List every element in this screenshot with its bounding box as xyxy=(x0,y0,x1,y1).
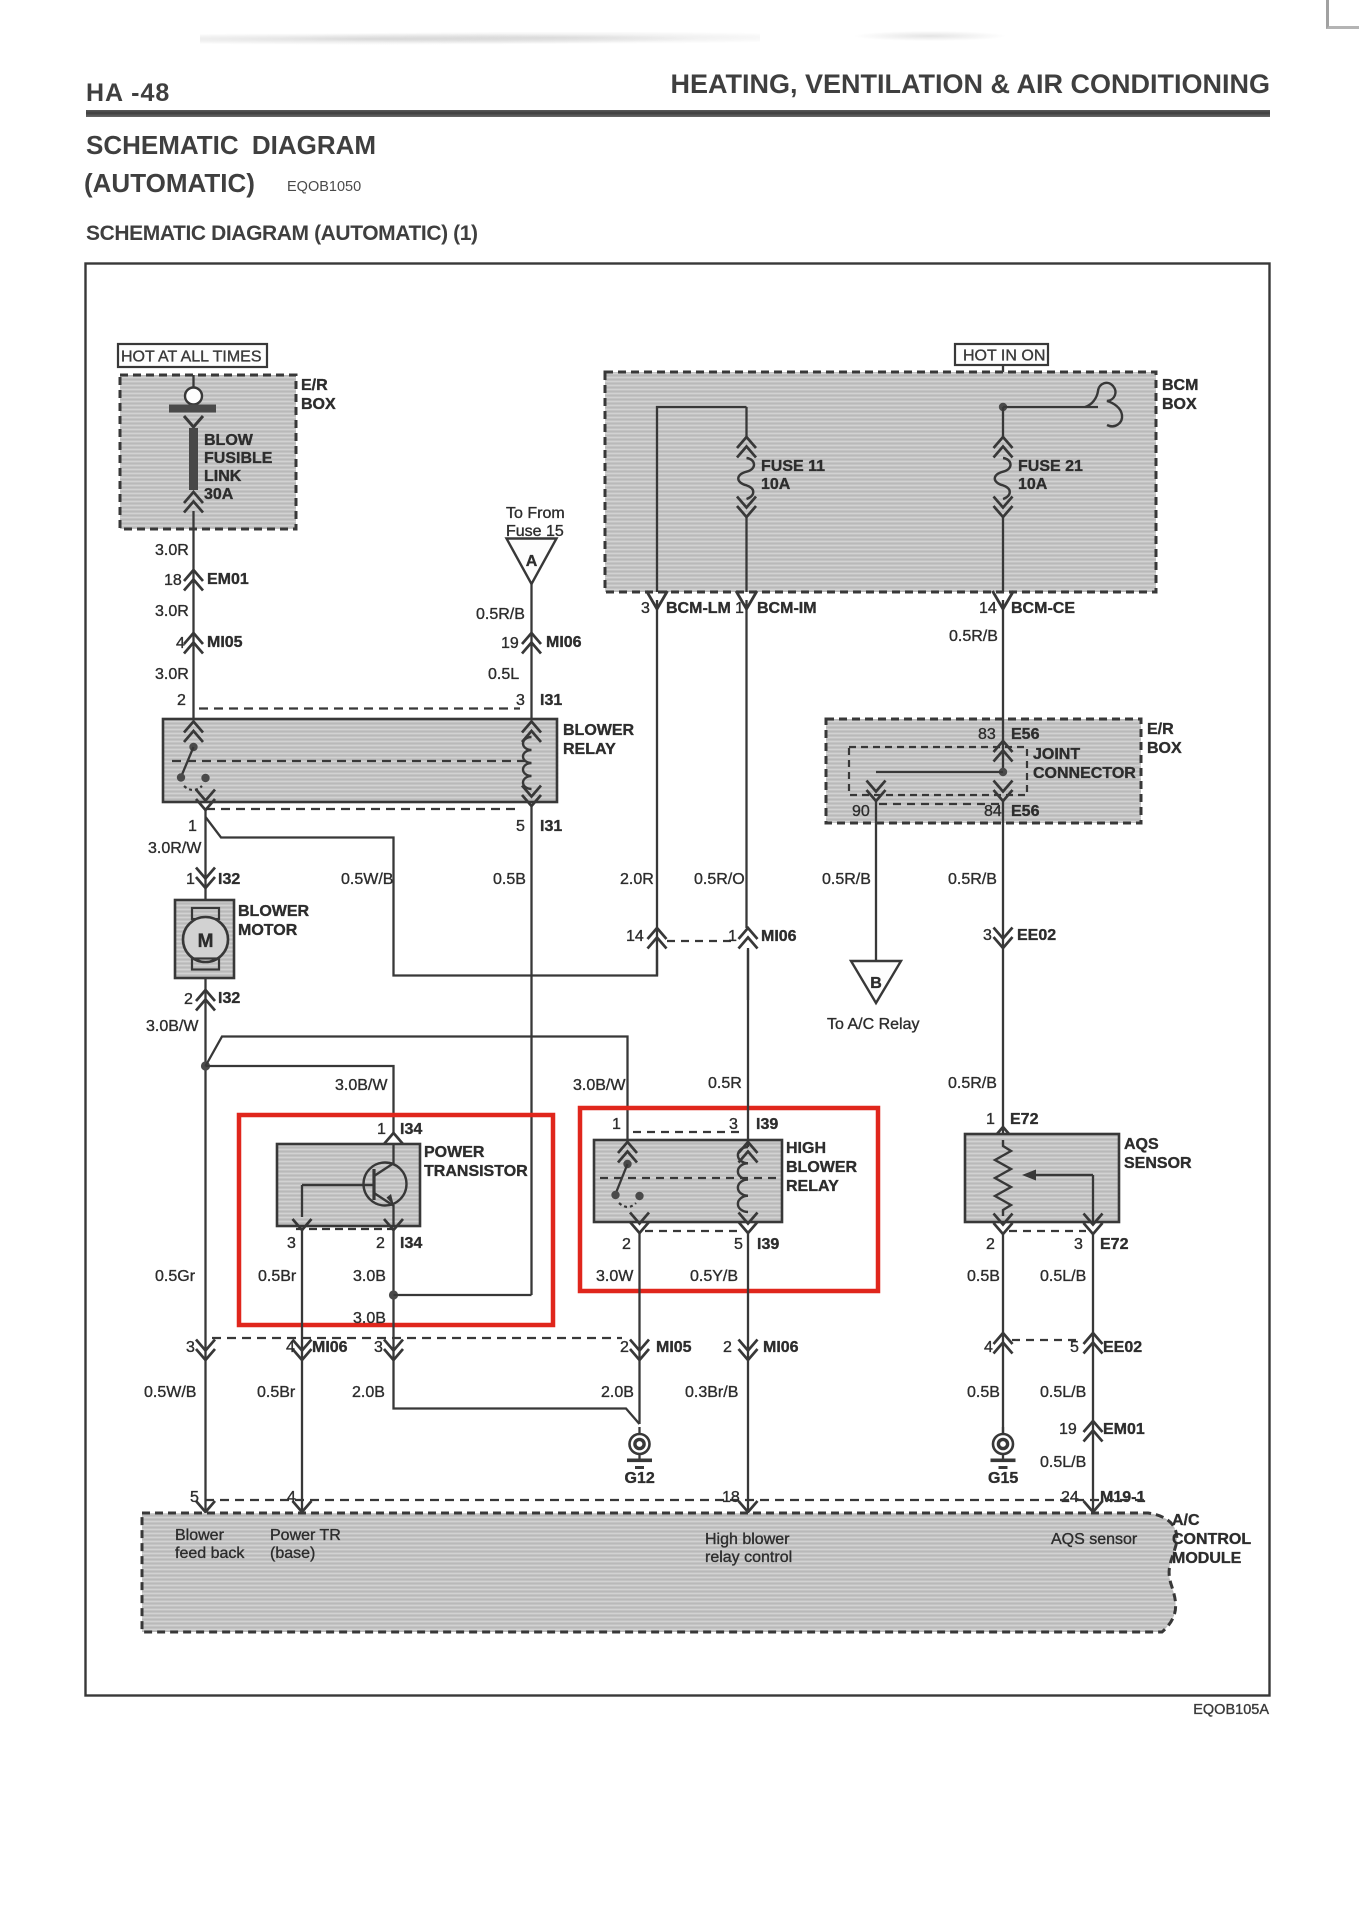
svg-text:4: 4 xyxy=(176,635,185,652)
svg-text:2.0B: 2.0B xyxy=(601,1384,634,1401)
svg-text:2: 2 xyxy=(622,1236,631,1253)
svg-text:5: 5 xyxy=(516,818,525,835)
svg-text:3.0B/W: 3.0B/W xyxy=(335,1077,388,1094)
svg-text:HIGH: HIGH xyxy=(786,1140,826,1157)
svg-text:3: 3 xyxy=(729,1116,738,1133)
svg-text:1: 1 xyxy=(188,818,197,835)
svg-text:10A: 10A xyxy=(761,476,791,493)
svg-text:14: 14 xyxy=(979,600,997,617)
svg-text:3.0R: 3.0R xyxy=(155,603,189,620)
svg-text:2: 2 xyxy=(376,1235,385,1252)
svg-text:BCM: BCM xyxy=(1162,377,1198,394)
svg-text:0.5R/B: 0.5R/B xyxy=(476,606,525,623)
svg-text:EM01: EM01 xyxy=(207,571,249,588)
svg-text:0.5Br: 0.5Br xyxy=(258,1268,297,1285)
svg-text:E72: E72 xyxy=(1100,1236,1129,1253)
svg-text:FUSIBLE: FUSIBLE xyxy=(204,450,273,467)
svg-text:MI06: MI06 xyxy=(546,634,582,651)
svg-text:I39: I39 xyxy=(756,1116,778,1133)
svg-text:MI06: MI06 xyxy=(763,1339,799,1356)
svg-text:Blower: Blower xyxy=(175,1527,225,1544)
svg-text:B: B xyxy=(870,975,882,992)
svg-text:EQOB105A: EQOB105A xyxy=(1193,1702,1269,1718)
svg-text:MI05: MI05 xyxy=(656,1339,692,1356)
svg-text:BLOWER: BLOWER xyxy=(786,1159,858,1176)
svg-text:0.5R/B: 0.5R/B xyxy=(822,871,871,888)
svg-text:1: 1 xyxy=(377,1121,386,1138)
svg-text:0.5W/B: 0.5W/B xyxy=(144,1384,196,1401)
svg-text:0.5Br: 0.5Br xyxy=(257,1384,296,1401)
svg-text:MOTOR: MOTOR xyxy=(238,922,298,939)
svg-text:BLOWER: BLOWER xyxy=(563,722,635,739)
svg-text:E56: E56 xyxy=(1011,803,1040,820)
svg-text:0.5R/B: 0.5R/B xyxy=(948,871,997,888)
svg-text:1: 1 xyxy=(986,1111,995,1128)
svg-text:M: M xyxy=(198,931,214,952)
svg-text:0.5B: 0.5B xyxy=(493,871,526,888)
svg-text:19: 19 xyxy=(501,635,519,652)
svg-text:BLOW: BLOW xyxy=(204,432,254,449)
svg-text:I39: I39 xyxy=(757,1236,779,1253)
svg-text:0.5R/B: 0.5R/B xyxy=(949,628,998,645)
svg-text:3.0R: 3.0R xyxy=(155,666,189,683)
svg-text:0.5L/B: 0.5L/B xyxy=(1040,1268,1086,1285)
svg-text:5: 5 xyxy=(1070,1339,1079,1356)
svg-text:RELAY: RELAY xyxy=(563,741,616,758)
svg-text:POWER: POWER xyxy=(424,1144,485,1161)
svg-text:2: 2 xyxy=(723,1339,732,1356)
svg-text:MODULE: MODULE xyxy=(1172,1550,1242,1567)
svg-text:3: 3 xyxy=(1074,1236,1083,1253)
svg-text:High blower: High blower xyxy=(705,1531,790,1548)
svg-text:Power TR: Power TR xyxy=(270,1527,341,1544)
svg-text:2: 2 xyxy=(986,1236,995,1253)
svg-text:0.5B: 0.5B xyxy=(967,1384,1000,1401)
svg-text:I34: I34 xyxy=(400,1121,422,1138)
svg-text:3: 3 xyxy=(516,692,525,709)
svg-text:2: 2 xyxy=(184,991,193,1008)
svg-text:4: 4 xyxy=(286,1339,295,1356)
svg-text:2: 2 xyxy=(177,692,186,709)
svg-text:3.0B/W: 3.0B/W xyxy=(573,1077,626,1094)
svg-text:AQS sensor: AQS sensor xyxy=(1051,1531,1138,1548)
svg-text:I34: I34 xyxy=(400,1235,422,1252)
svg-text:0.5Y/B: 0.5Y/B xyxy=(690,1268,738,1285)
svg-text:BCM-LM: BCM-LM xyxy=(666,600,731,617)
svg-text:TRANSISTOR: TRANSISTOR xyxy=(424,1163,528,1180)
svg-text:5: 5 xyxy=(190,1489,199,1506)
svg-text:A: A xyxy=(526,553,538,570)
svg-text:0.5R: 0.5R xyxy=(708,1075,742,1092)
svg-text:relay control: relay control xyxy=(705,1549,792,1566)
svg-text:24: 24 xyxy=(1061,1489,1079,1506)
svg-text:0.5L/B: 0.5L/B xyxy=(1040,1384,1086,1401)
svg-text:3: 3 xyxy=(983,927,992,944)
svg-text:0.5W/B: 0.5W/B xyxy=(341,871,393,888)
svg-text:AQS: AQS xyxy=(1124,1136,1159,1153)
svg-text:5: 5 xyxy=(734,1236,743,1253)
svg-text:feed back: feed back xyxy=(175,1545,245,1562)
svg-text:4: 4 xyxy=(287,1489,296,1506)
svg-text:0.5Gr: 0.5Gr xyxy=(155,1268,196,1285)
svg-text:MI06: MI06 xyxy=(312,1339,348,1356)
svg-text:To From: To From xyxy=(506,505,565,522)
svg-text:To A/C Relay: To A/C Relay xyxy=(827,1016,919,1033)
svg-text:E56: E56 xyxy=(1011,726,1040,743)
svg-text:FUSE 21: FUSE 21 xyxy=(1018,458,1083,475)
svg-text:19: 19 xyxy=(1059,1421,1077,1438)
svg-text:2: 2 xyxy=(620,1339,629,1356)
svg-text:0.3Br/B: 0.3Br/B xyxy=(685,1384,738,1401)
svg-text:84: 84 xyxy=(984,803,1002,820)
svg-text:BOX: BOX xyxy=(301,396,336,413)
svg-text:3: 3 xyxy=(287,1235,296,1252)
svg-text:I32: I32 xyxy=(218,871,240,888)
svg-text:83: 83 xyxy=(978,726,996,743)
svg-text:LINK: LINK xyxy=(204,468,242,485)
svg-text:BCM-CE: BCM-CE xyxy=(1011,600,1075,617)
svg-text:M19-1: M19-1 xyxy=(1100,1489,1145,1506)
svg-text:0.5B: 0.5B xyxy=(967,1268,1000,1285)
svg-text:1: 1 xyxy=(186,871,195,888)
svg-text:(base): (base) xyxy=(270,1545,315,1562)
svg-text:HOT IN ON: HOT IN ON xyxy=(963,348,1045,365)
svg-text:14: 14 xyxy=(626,928,644,945)
svg-text:JOINT: JOINT xyxy=(1033,746,1080,763)
svg-text:0.5R/B: 0.5R/B xyxy=(948,1075,997,1092)
svg-text:2.0R: 2.0R xyxy=(620,871,654,888)
svg-text:3: 3 xyxy=(186,1339,195,1356)
svg-text:BLOWER: BLOWER xyxy=(238,903,310,920)
svg-text:3.0R/W: 3.0R/W xyxy=(148,840,202,857)
svg-text:EM01: EM01 xyxy=(1103,1421,1145,1438)
svg-text:3.0W: 3.0W xyxy=(596,1268,634,1285)
svg-text:3.0B/W: 3.0B/W xyxy=(146,1018,199,1035)
svg-text:0.5L: 0.5L xyxy=(488,666,519,683)
svg-text:3: 3 xyxy=(641,600,650,617)
svg-text:RELAY: RELAY xyxy=(786,1178,839,1195)
svg-text:SENSOR: SENSOR xyxy=(1124,1155,1192,1172)
svg-text:EE02: EE02 xyxy=(1103,1339,1142,1356)
svg-text:MI06: MI06 xyxy=(761,928,797,945)
svg-text:0.5L/B: 0.5L/B xyxy=(1040,1454,1086,1471)
svg-text:3.0B: 3.0B xyxy=(353,1268,386,1285)
svg-text:G15: G15 xyxy=(988,1470,1018,1487)
svg-text:A/C: A/C xyxy=(1172,1512,1200,1529)
svg-text:0.5R/O: 0.5R/O xyxy=(694,871,745,888)
svg-text:3: 3 xyxy=(374,1339,383,1356)
svg-text:E72: E72 xyxy=(1010,1111,1039,1128)
svg-text:MI05: MI05 xyxy=(207,634,243,651)
svg-text:E/R: E/R xyxy=(301,377,328,394)
svg-text:3.0R: 3.0R xyxy=(155,542,189,559)
svg-text:EE02: EE02 xyxy=(1017,927,1056,944)
svg-text:G12: G12 xyxy=(625,1470,655,1487)
svg-text:BCM-IM: BCM-IM xyxy=(757,600,817,617)
svg-text:1: 1 xyxy=(612,1116,621,1133)
svg-text:18: 18 xyxy=(164,572,182,589)
svg-text:I31: I31 xyxy=(540,692,562,709)
svg-text:E/R: E/R xyxy=(1147,721,1174,738)
svg-text:CONNECTOR: CONNECTOR xyxy=(1033,765,1136,782)
svg-text:10A: 10A xyxy=(1018,476,1048,493)
svg-text:I31: I31 xyxy=(540,818,562,835)
svg-text:BOX: BOX xyxy=(1162,396,1197,413)
svg-text:3.0B: 3.0B xyxy=(353,1310,386,1327)
svg-text:FUSE 11: FUSE 11 xyxy=(761,458,825,475)
svg-text:18: 18 xyxy=(722,1489,740,1506)
svg-text:30A: 30A xyxy=(204,486,234,503)
svg-text:HOT AT ALL TIMES: HOT AT ALL TIMES xyxy=(121,349,262,366)
svg-text:1: 1 xyxy=(735,600,744,617)
svg-text:CONTROL: CONTROL xyxy=(1172,1531,1251,1548)
svg-text:90: 90 xyxy=(852,803,870,820)
svg-text:I32: I32 xyxy=(218,990,240,1007)
svg-text:2.0B: 2.0B xyxy=(352,1384,385,1401)
svg-text:1: 1 xyxy=(728,928,737,945)
svg-text:BOX: BOX xyxy=(1147,740,1182,757)
svg-text:4: 4 xyxy=(984,1339,993,1356)
